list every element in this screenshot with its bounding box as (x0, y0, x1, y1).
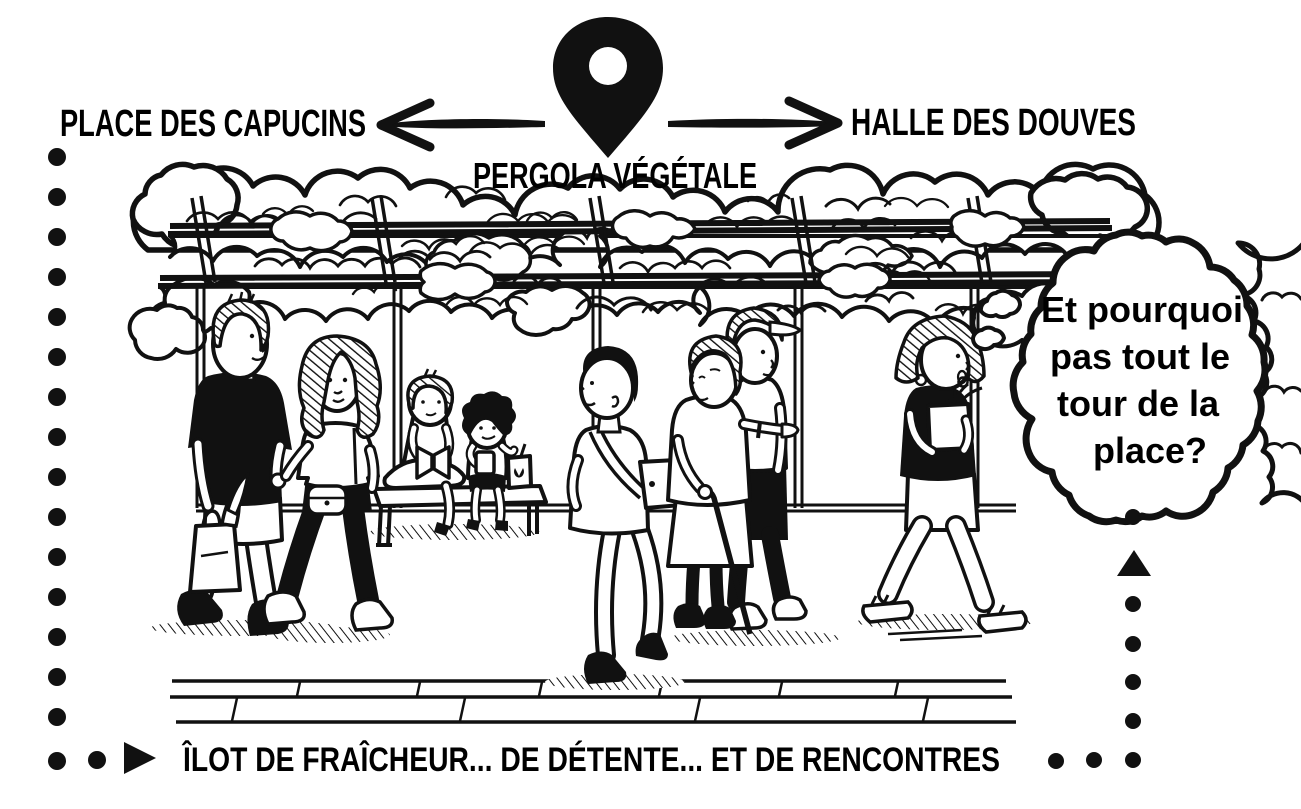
svg-text:tour de la: tour de la (1057, 383, 1220, 424)
svg-text:HALLE DES DOUVES: HALLE DES DOUVES (851, 102, 1136, 144)
svg-text:ÎLOT DE FRAÎCHEUR... DE DÉTENT: ÎLOT DE FRAÎCHEUR... DE DÉTENTE... ET DE… (181, 741, 1000, 779)
svg-text:place?: place? (1093, 430, 1207, 471)
svg-text:PLACE DES CAPUCINS: PLACE DES CAPUCINS (60, 103, 366, 145)
svg-text:pas tout le: pas tout le (1050, 336, 1230, 377)
svg-text:Et pourquoi: Et pourquoi (1041, 289, 1243, 330)
svg-text:PERGOLA VÉGÉTALE: PERGOLA VÉGÉTALE (473, 155, 757, 196)
